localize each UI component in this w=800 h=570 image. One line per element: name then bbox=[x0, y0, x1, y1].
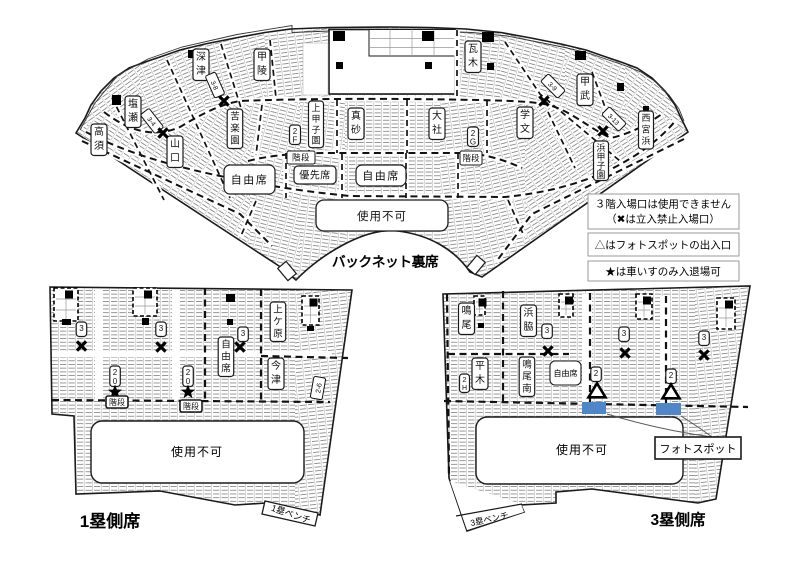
svg-text:3: 3 bbox=[159, 324, 164, 333]
svg-text:木: 木 bbox=[468, 57, 478, 69]
svg-text:上: 上 bbox=[311, 103, 320, 113]
svg-text:△はフォトスポットの出入口: △はフォトスポットの出入口 bbox=[595, 239, 732, 252]
svg-text:2: 2 bbox=[113, 368, 118, 377]
svg-text:３階入場口は使用できません: ３階入場口は使用できません bbox=[595, 198, 731, 211]
svg-text:自由席: 自由席 bbox=[362, 168, 400, 182]
svg-text:3: 3 bbox=[622, 329, 627, 338]
svg-text:瀬: 瀬 bbox=[128, 112, 138, 124]
svg-text:社: 社 bbox=[432, 123, 442, 136]
svg-text:フォトスポット: フォトスポット bbox=[660, 443, 737, 456]
svg-text:砂: 砂 bbox=[351, 123, 361, 136]
svg-text:F: F bbox=[293, 135, 298, 144]
svg-text:津: 津 bbox=[196, 65, 206, 77]
svg-text:階段: 階段 bbox=[292, 153, 310, 163]
svg-text:原: 原 bbox=[273, 329, 283, 340]
svg-text:使用不可: 使用不可 bbox=[556, 442, 608, 457]
svg-text:★は車いすのみ入退場可: ★は車いすのみ入退場可 bbox=[605, 265, 721, 278]
svg-text:武: 武 bbox=[580, 89, 590, 102]
svg-text:西: 西 bbox=[641, 113, 650, 123]
svg-text:由: 由 bbox=[221, 351, 231, 363]
svg-text:塩: 塩 bbox=[128, 97, 138, 110]
svg-text:2: 2 bbox=[669, 371, 674, 380]
svg-text:上: 上 bbox=[273, 305, 283, 316]
svg-text:楽: 楽 bbox=[230, 123, 240, 135]
svg-text:使用不可: 使用不可 bbox=[171, 444, 223, 459]
svg-text:口: 口 bbox=[170, 153, 180, 164]
svg-text:H: H bbox=[462, 385, 467, 392]
svg-text:2: 2 bbox=[463, 377, 467, 384]
svg-text:鳴: 鳴 bbox=[522, 359, 532, 371]
svg-text:2: 2 bbox=[594, 369, 599, 378]
svg-text:高: 高 bbox=[94, 125, 104, 138]
svg-text:浜: 浜 bbox=[524, 307, 534, 319]
svg-text:G: G bbox=[470, 137, 476, 146]
svg-text:自: 自 bbox=[221, 339, 231, 351]
svg-text:文: 文 bbox=[520, 122, 530, 135]
svg-text:津: 津 bbox=[271, 374, 281, 386]
svg-text:南: 南 bbox=[522, 383, 532, 395]
svg-text:木: 木 bbox=[475, 374, 485, 386]
svg-text:平: 平 bbox=[475, 361, 485, 372]
svg-text:苦: 苦 bbox=[230, 111, 240, 123]
svg-text:バックネット裏席: バックネット裏席 bbox=[332, 254, 439, 270]
svg-text:学: 学 bbox=[520, 108, 530, 121]
svg-text:真: 真 bbox=[351, 109, 361, 122]
svg-text:須: 須 bbox=[94, 140, 104, 152]
svg-text:階段: 階段 bbox=[462, 153, 480, 163]
svg-text:階段: 階段 bbox=[183, 401, 199, 411]
svg-text:自由席: 自由席 bbox=[554, 368, 578, 378]
svg-text:2: 2 bbox=[186, 368, 191, 377]
svg-text:0: 0 bbox=[186, 377, 191, 386]
svg-text:優先席: 優先席 bbox=[299, 169, 331, 182]
svg-text:陵: 陵 bbox=[257, 65, 267, 77]
svg-text:ケ: ケ bbox=[273, 317, 283, 328]
svg-text:席: 席 bbox=[221, 363, 231, 375]
svg-text:園: 園 bbox=[596, 170, 605, 180]
svg-text:3: 3 bbox=[545, 326, 550, 335]
svg-text:自由席: 自由席 bbox=[231, 172, 269, 186]
svg-text:宮: 宮 bbox=[641, 124, 650, 135]
svg-text:今: 今 bbox=[271, 359, 281, 372]
svg-text:尾: 尾 bbox=[522, 372, 532, 383]
svg-text:園: 園 bbox=[311, 136, 320, 146]
svg-text:甲: 甲 bbox=[257, 52, 267, 63]
svg-text:3: 3 bbox=[702, 333, 707, 342]
svg-text:大: 大 bbox=[432, 109, 442, 122]
svg-text:瓦: 瓦 bbox=[468, 44, 478, 55]
svg-text:3: 3 bbox=[79, 324, 84, 333]
svg-text:脇: 脇 bbox=[524, 321, 534, 333]
svg-text:階段: 階段 bbox=[109, 397, 125, 407]
svg-text:3: 3 bbox=[241, 329, 246, 338]
svg-text:1塁側席: 1塁側席 bbox=[80, 511, 140, 531]
svg-text:0: 0 bbox=[113, 377, 118, 386]
svg-text:深: 深 bbox=[196, 51, 206, 63]
svg-text:山: 山 bbox=[170, 138, 180, 150]
svg-text:3塁側席: 3塁側席 bbox=[650, 510, 706, 529]
svg-text:使用不可: 使用不可 bbox=[357, 209, 407, 223]
svg-text:鳴: 鳴 bbox=[462, 304, 472, 317]
svg-text:子: 子 bbox=[311, 125, 320, 135]
svg-text:甲: 甲 bbox=[580, 77, 590, 88]
svg-text:浜: 浜 bbox=[641, 136, 650, 146]
svg-text:園: 園 bbox=[230, 136, 240, 147]
svg-text:甲: 甲 bbox=[311, 114, 320, 124]
svg-text:尾: 尾 bbox=[462, 319, 472, 331]
svg-text:（✖は立入禁止入場口）: （✖は立入禁止入場口） bbox=[606, 213, 720, 226]
